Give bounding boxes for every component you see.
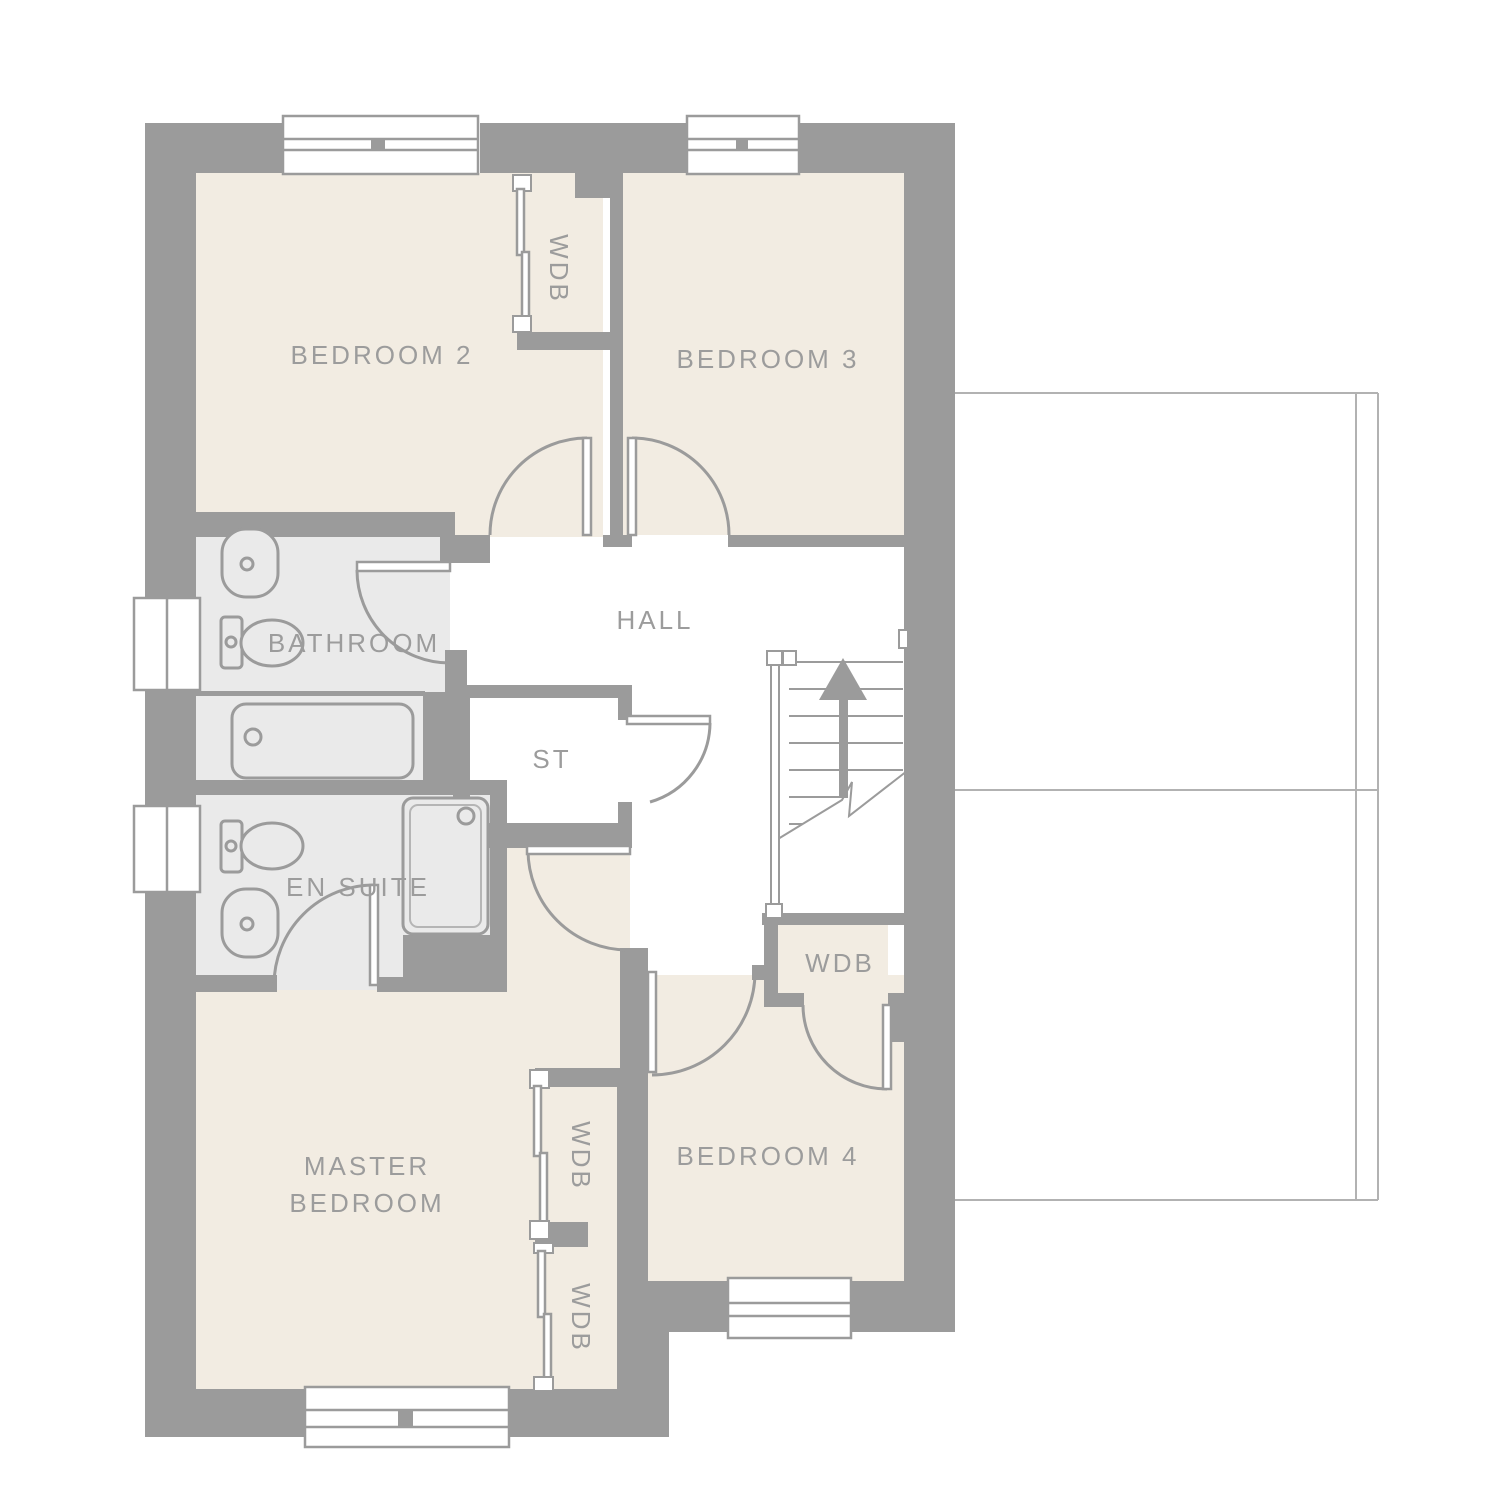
label-wdb-top: WDB bbox=[544, 234, 574, 304]
room-master-extension bbox=[490, 845, 630, 990]
stairs-newel-post bbox=[783, 651, 796, 665]
wall-segment bbox=[764, 913, 778, 997]
floorplan-canvas: BEDROOM 2 BEDROOM 3 BEDROOM 4 MASTER BED… bbox=[0, 0, 1500, 1500]
label-wdb-bedroom4: WDB bbox=[805, 948, 875, 978]
stairs-newel-post bbox=[766, 904, 782, 918]
stairs-newel-post bbox=[767, 651, 782, 665]
wall-segment bbox=[440, 535, 490, 563]
label-bedroom3: BEDROOM 3 bbox=[676, 344, 859, 374]
bathtub bbox=[232, 704, 413, 778]
wall-segment bbox=[620, 948, 648, 1087]
label-hall: HALL bbox=[616, 605, 693, 635]
stairs-wall-rail bbox=[899, 630, 908, 648]
window-bathroom bbox=[134, 598, 200, 690]
bathroom-sink bbox=[222, 529, 278, 597]
floorplan-svg: BEDROOM 2 BEDROOM 3 BEDROOM 4 MASTER BED… bbox=[0, 0, 1500, 1500]
wall-segment bbox=[618, 802, 632, 823]
wall-segment bbox=[517, 332, 610, 350]
window-bedroom3 bbox=[687, 116, 799, 174]
wall-segment bbox=[377, 977, 403, 992]
window-bedroom2 bbox=[283, 116, 478, 174]
ensuite-sink bbox=[222, 889, 278, 957]
wall-segment bbox=[728, 535, 904, 547]
label-bathroom: BATHROOM bbox=[268, 628, 440, 658]
wall-segment bbox=[904, 123, 955, 1332]
wall-segment bbox=[193, 780, 507, 795]
label-store: ST bbox=[532, 744, 571, 774]
wall-segment bbox=[851, 1281, 955, 1332]
label-bedroom4: BEDROOM 4 bbox=[676, 1141, 859, 1171]
wall-segment bbox=[480, 123, 687, 173]
wall-segment bbox=[669, 1281, 728, 1332]
wall-segment bbox=[196, 975, 277, 992]
ensuite-toilet bbox=[221, 821, 303, 872]
label-master-line2: BEDROOM bbox=[289, 1188, 444, 1218]
wall-segment bbox=[145, 123, 196, 600]
wall-segment bbox=[196, 691, 425, 696]
up-arrow-icon bbox=[819, 658, 867, 798]
wall-segment bbox=[490, 795, 507, 938]
stairs bbox=[766, 630, 908, 918]
label-ensuite: EN SUITE bbox=[286, 872, 430, 902]
label-master-line1: MASTER bbox=[304, 1151, 430, 1181]
wall-segment bbox=[145, 892, 196, 1437]
shower bbox=[403, 798, 488, 934]
wall-segment bbox=[145, 688, 196, 808]
wall-segment bbox=[453, 685, 632, 698]
label-bedroom2: BEDROOM 2 bbox=[290, 340, 473, 370]
window-ensuite bbox=[134, 806, 200, 892]
garage-roof-outline bbox=[955, 393, 1378, 1200]
label-wdb-master-lower: WDB bbox=[566, 1283, 596, 1353]
room-bedroom4 bbox=[648, 975, 904, 1281]
window-master-bedroom bbox=[305, 1387, 509, 1447]
wall-segment bbox=[535, 1068, 640, 1087]
wall-segment bbox=[762, 913, 904, 925]
wall-segment bbox=[575, 173, 610, 198]
wall-segment bbox=[617, 1087, 648, 1389]
wall-segment bbox=[603, 535, 632, 547]
wall-segment bbox=[764, 993, 804, 1007]
window-bedroom4 bbox=[728, 1278, 851, 1338]
wall-segment bbox=[145, 1389, 305, 1437]
door-store bbox=[627, 716, 710, 802]
label-wdb-master-upper: WDB bbox=[566, 1121, 596, 1191]
wall-segment bbox=[403, 935, 507, 992]
wall-segment bbox=[610, 173, 623, 535]
stairs-handrail bbox=[771, 664, 779, 906]
